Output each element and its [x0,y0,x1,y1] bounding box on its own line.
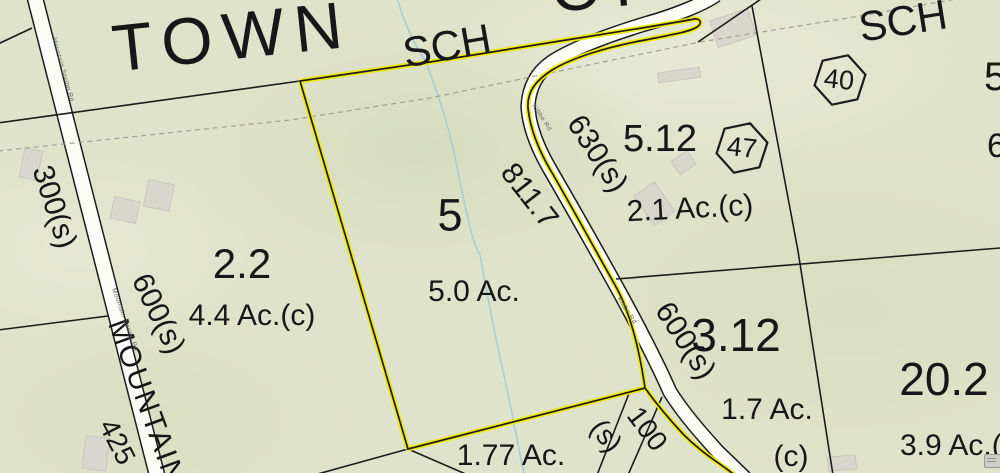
map-canvas[interactable]: TOWN OF SCH SCH 2.2 4.4 Ac.(c) 5 5.0 Ac.… [0,0,1000,473]
hex-marker-40-number: 40 [823,65,856,95]
parcel-area-5: 5.0 Ac. [428,277,520,307]
parcel-area-3-12-suffix: (c) [774,442,809,472]
parcel-id-5-12: 5.12 [623,120,697,158]
parcel-area-5-12: 2.1 Ac.(c) [626,191,754,228]
parcel-area-1-77: 1.77 Ac. [457,441,565,471]
parcel-area-2-2: 4.4 Ac.(c) [189,301,316,331]
parcel-id-2-2: 2.2 [213,243,271,285]
parcel-id-edge-partial-top: 5 [984,57,1000,97]
map-attribution-icon [984,454,1000,468]
parcel-id-20-2: 20.2 [899,356,989,402]
parcel-id-5: 5 [437,193,462,238]
parcel-area-3-12: 1.7 Ac. [721,395,813,425]
parcel-id-edge-partial-mid: 6 [987,129,1000,163]
hex-marker-47-number: 47 [726,133,759,163]
